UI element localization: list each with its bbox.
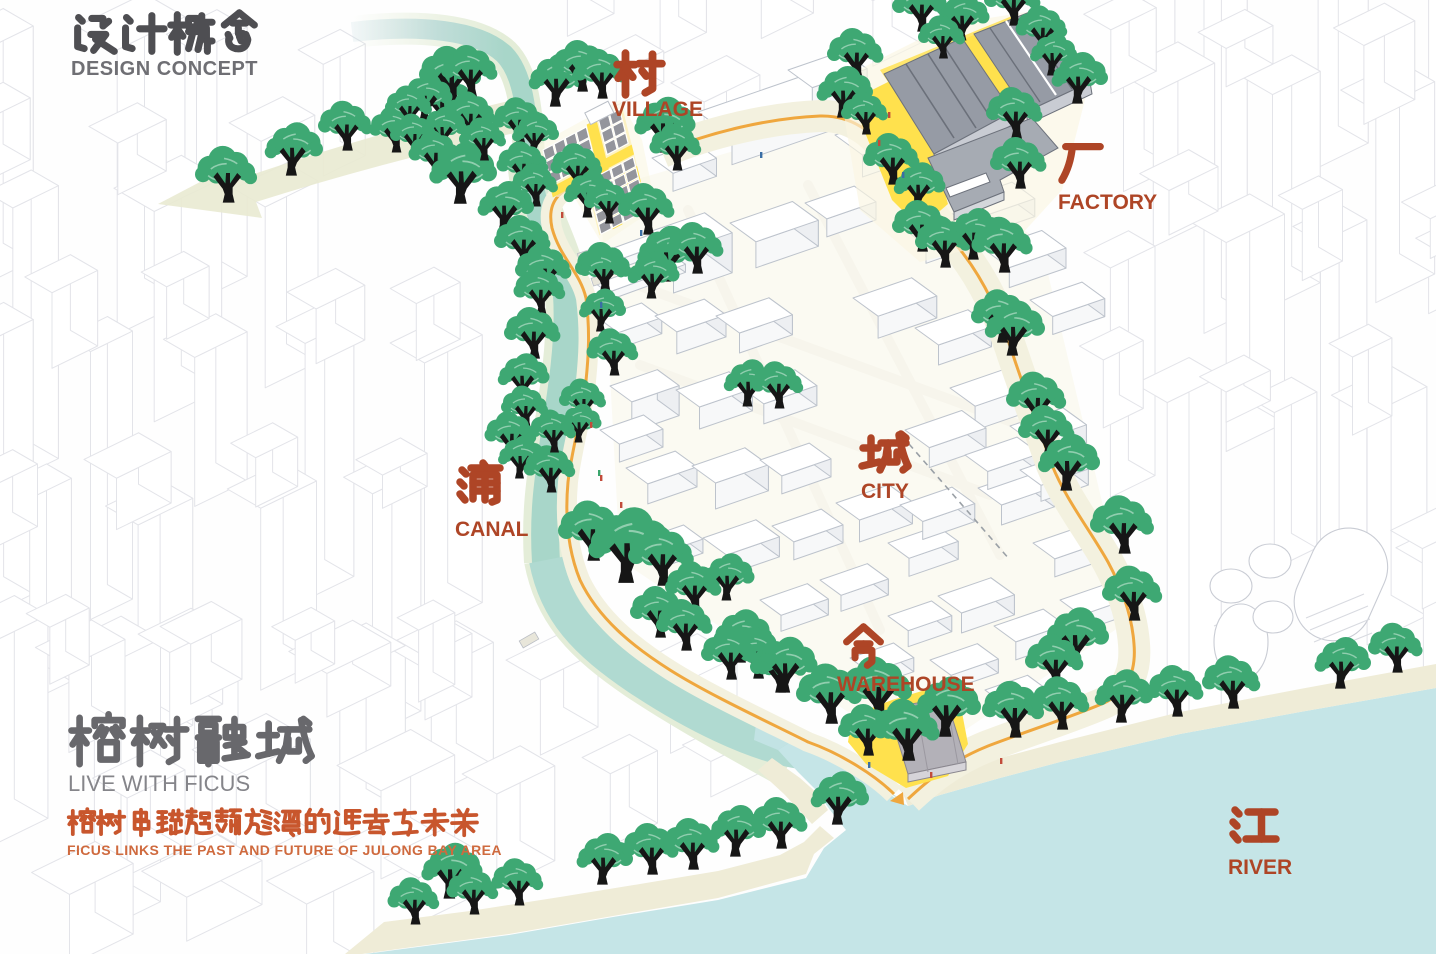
svg-text:DESIGN CONCEPT: DESIGN CONCEPT: [71, 58, 258, 80]
svg-text:VILLAGE: VILLAGE: [612, 98, 703, 121]
svg-text:WAREHOUSE: WAREHOUSE: [837, 673, 975, 696]
svg-text:CANAL: CANAL: [455, 518, 529, 541]
svg-text:LIVE WITH FICUS: LIVE WITH FICUS: [68, 771, 250, 796]
svg-text:CITY: CITY: [861, 480, 909, 503]
svg-text:FICUS LINKS THE PAST AND FUTUR: FICUS LINKS THE PAST AND FUTURE OF JULON…: [67, 842, 502, 858]
svg-text:FACTORY: FACTORY: [1058, 191, 1157, 214]
svg-text:RIVER: RIVER: [1228, 856, 1292, 879]
